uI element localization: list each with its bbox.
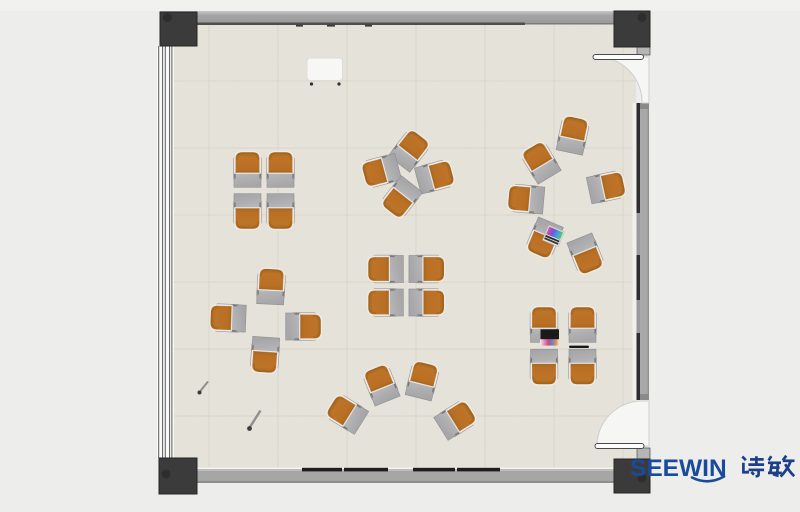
svg-text:SEEWIN: SEEWIN [630, 455, 727, 482]
